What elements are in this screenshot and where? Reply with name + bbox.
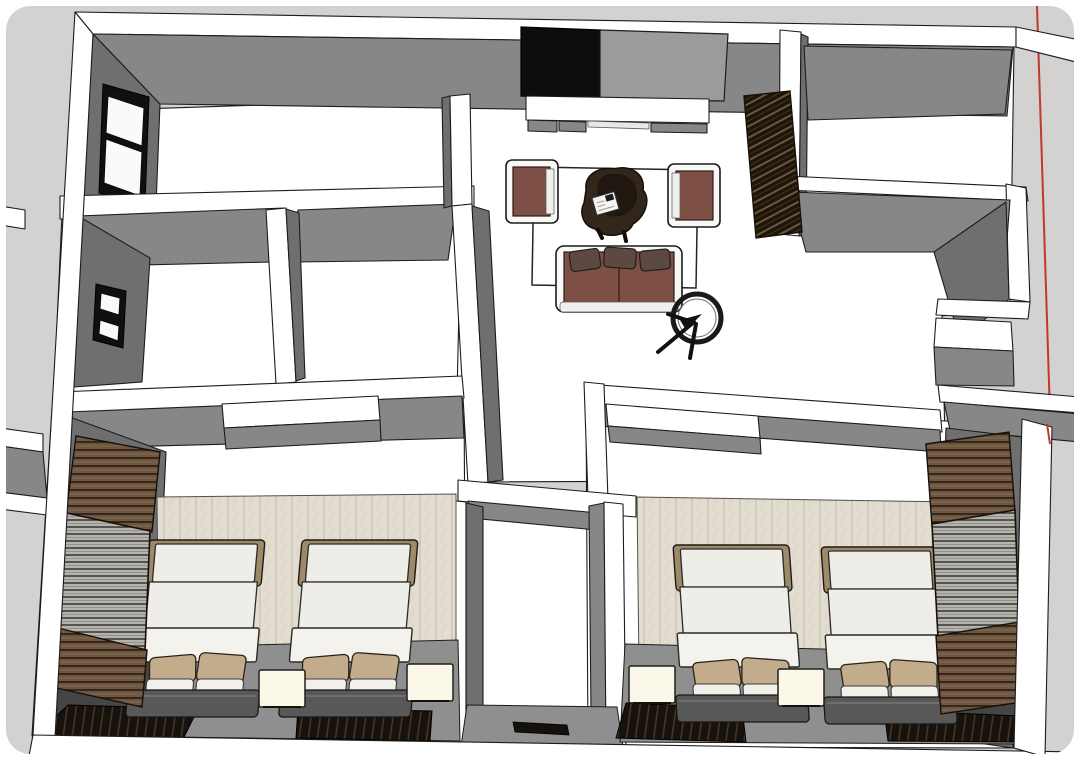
media-console	[526, 96, 709, 133]
model-viewport[interactable]	[0, 0, 1080, 760]
nightstand	[407, 664, 453, 701]
window-with-wood-curtains	[926, 432, 1022, 714]
apartment-model	[0, 12, 1080, 760]
wall-tv	[521, 27, 600, 99]
nightstand	[629, 666, 675, 703]
tv-side-panel	[600, 30, 728, 101]
window-topleft	[99, 84, 149, 205]
nightstand	[259, 670, 305, 707]
armchair-right	[668, 164, 720, 227]
armchair-left	[506, 160, 558, 223]
sofa	[556, 246, 682, 312]
nightstand	[778, 669, 824, 706]
west-wall-stub-1	[0, 206, 25, 229]
window-small	[93, 284, 126, 348]
